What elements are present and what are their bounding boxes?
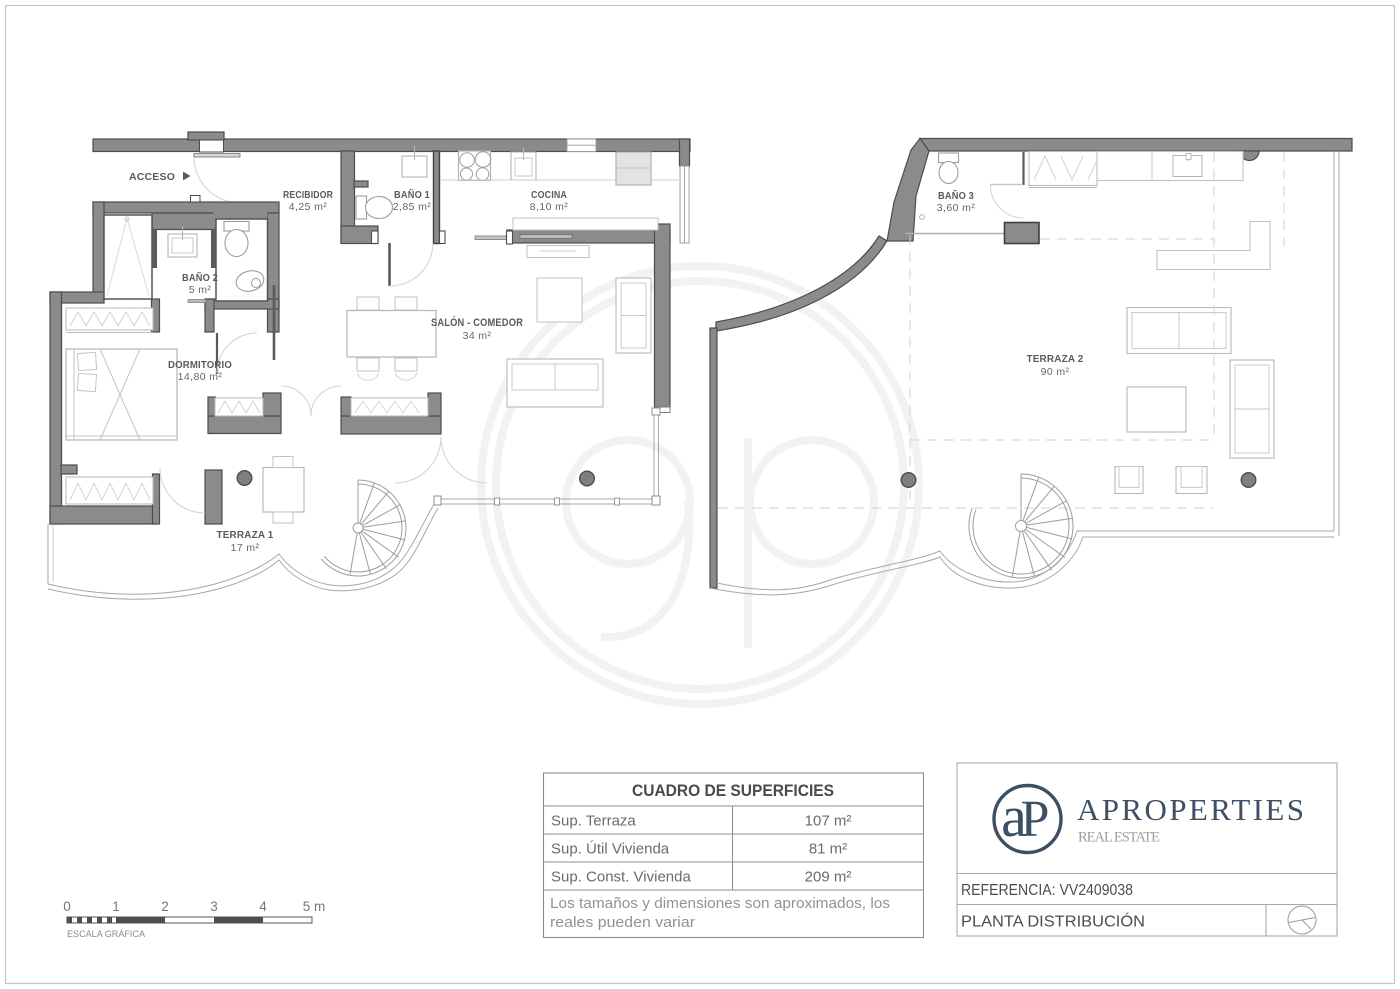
svg-text:TERRAZA 1: TERRAZA 1	[217, 529, 274, 541]
svg-text:2,85 m²: 2,85 m²	[393, 201, 431, 213]
svg-text:P: P	[1021, 791, 1050, 848]
svg-text:8,10 m²: 8,10 m²	[530, 201, 568, 213]
svg-text:BAÑO 2: BAÑO 2	[182, 271, 218, 284]
svg-text:APROPERTIES: APROPERTIES	[1077, 792, 1304, 827]
svg-text:5 m²: 5 m²	[189, 284, 212, 296]
svg-text:TERRAZA 2: TERRAZA 2	[1027, 353, 1084, 365]
svg-text:REFERENCIA: VV2409038: REFERENCIA: VV2409038	[961, 882, 1133, 899]
svg-text:BAÑO 3: BAÑO 3	[938, 189, 974, 202]
svg-text:ESCALA GRÁFICA: ESCALA GRÁFICA	[67, 929, 146, 940]
svg-text:1: 1	[112, 899, 120, 914]
svg-text:107 m²: 107 m²	[805, 813, 852, 830]
svg-text:Sup. Útil Vivienda: Sup. Útil Vivienda	[551, 841, 670, 858]
svg-text:Los tamaños y dimensiones son: Los tamaños y dimensiones son aproximado…	[550, 895, 890, 912]
svg-text:209 m²: 209 m²	[805, 869, 852, 886]
svg-text:Sup. Terraza: Sup. Terraza	[551, 813, 636, 830]
svg-text:COCINA: COCINA	[531, 189, 567, 201]
svg-text:BAÑO 1: BAÑO 1	[394, 188, 430, 201]
svg-text:REAL ESTATE: REAL ESTATE	[1078, 830, 1160, 846]
svg-text:17 m²: 17 m²	[231, 542, 260, 554]
svg-text:3,60 m²: 3,60 m²	[937, 202, 975, 214]
svg-text:5 m: 5 m	[303, 899, 326, 914]
svg-text:2: 2	[161, 899, 169, 914]
svg-text:CUADRO DE SUPERFICIES: CUADRO DE SUPERFICIES	[632, 781, 834, 800]
svg-text:14,80 m²: 14,80 m²	[178, 371, 223, 383]
svg-text:reales pueden variar: reales pueden variar	[550, 914, 695, 931]
svg-text:34 m²: 34 m²	[463, 330, 492, 342]
svg-text:Sup. Const. Vivienda: Sup. Const. Vivienda	[551, 869, 691, 886]
svg-text:4: 4	[259, 899, 267, 914]
svg-text:PLANTA DISTRIBUCIÓN: PLANTA DISTRIBUCIÓN	[961, 914, 1145, 931]
svg-text:RECIBIDOR: RECIBIDOR	[283, 189, 333, 201]
svg-text:3: 3	[210, 899, 218, 914]
svg-text:0: 0	[63, 899, 71, 914]
svg-text:ACCESO: ACCESO	[129, 171, 175, 183]
svg-text:81 m²: 81 m²	[809, 841, 847, 858]
svg-text:4,25 m²: 4,25 m²	[289, 201, 327, 213]
svg-text:SALÓN - COMEDOR: SALÓN - COMEDOR	[431, 316, 523, 329]
svg-text:DORMITORIO: DORMITORIO	[168, 359, 232, 371]
svg-text:90 m²: 90 m²	[1041, 366, 1070, 378]
